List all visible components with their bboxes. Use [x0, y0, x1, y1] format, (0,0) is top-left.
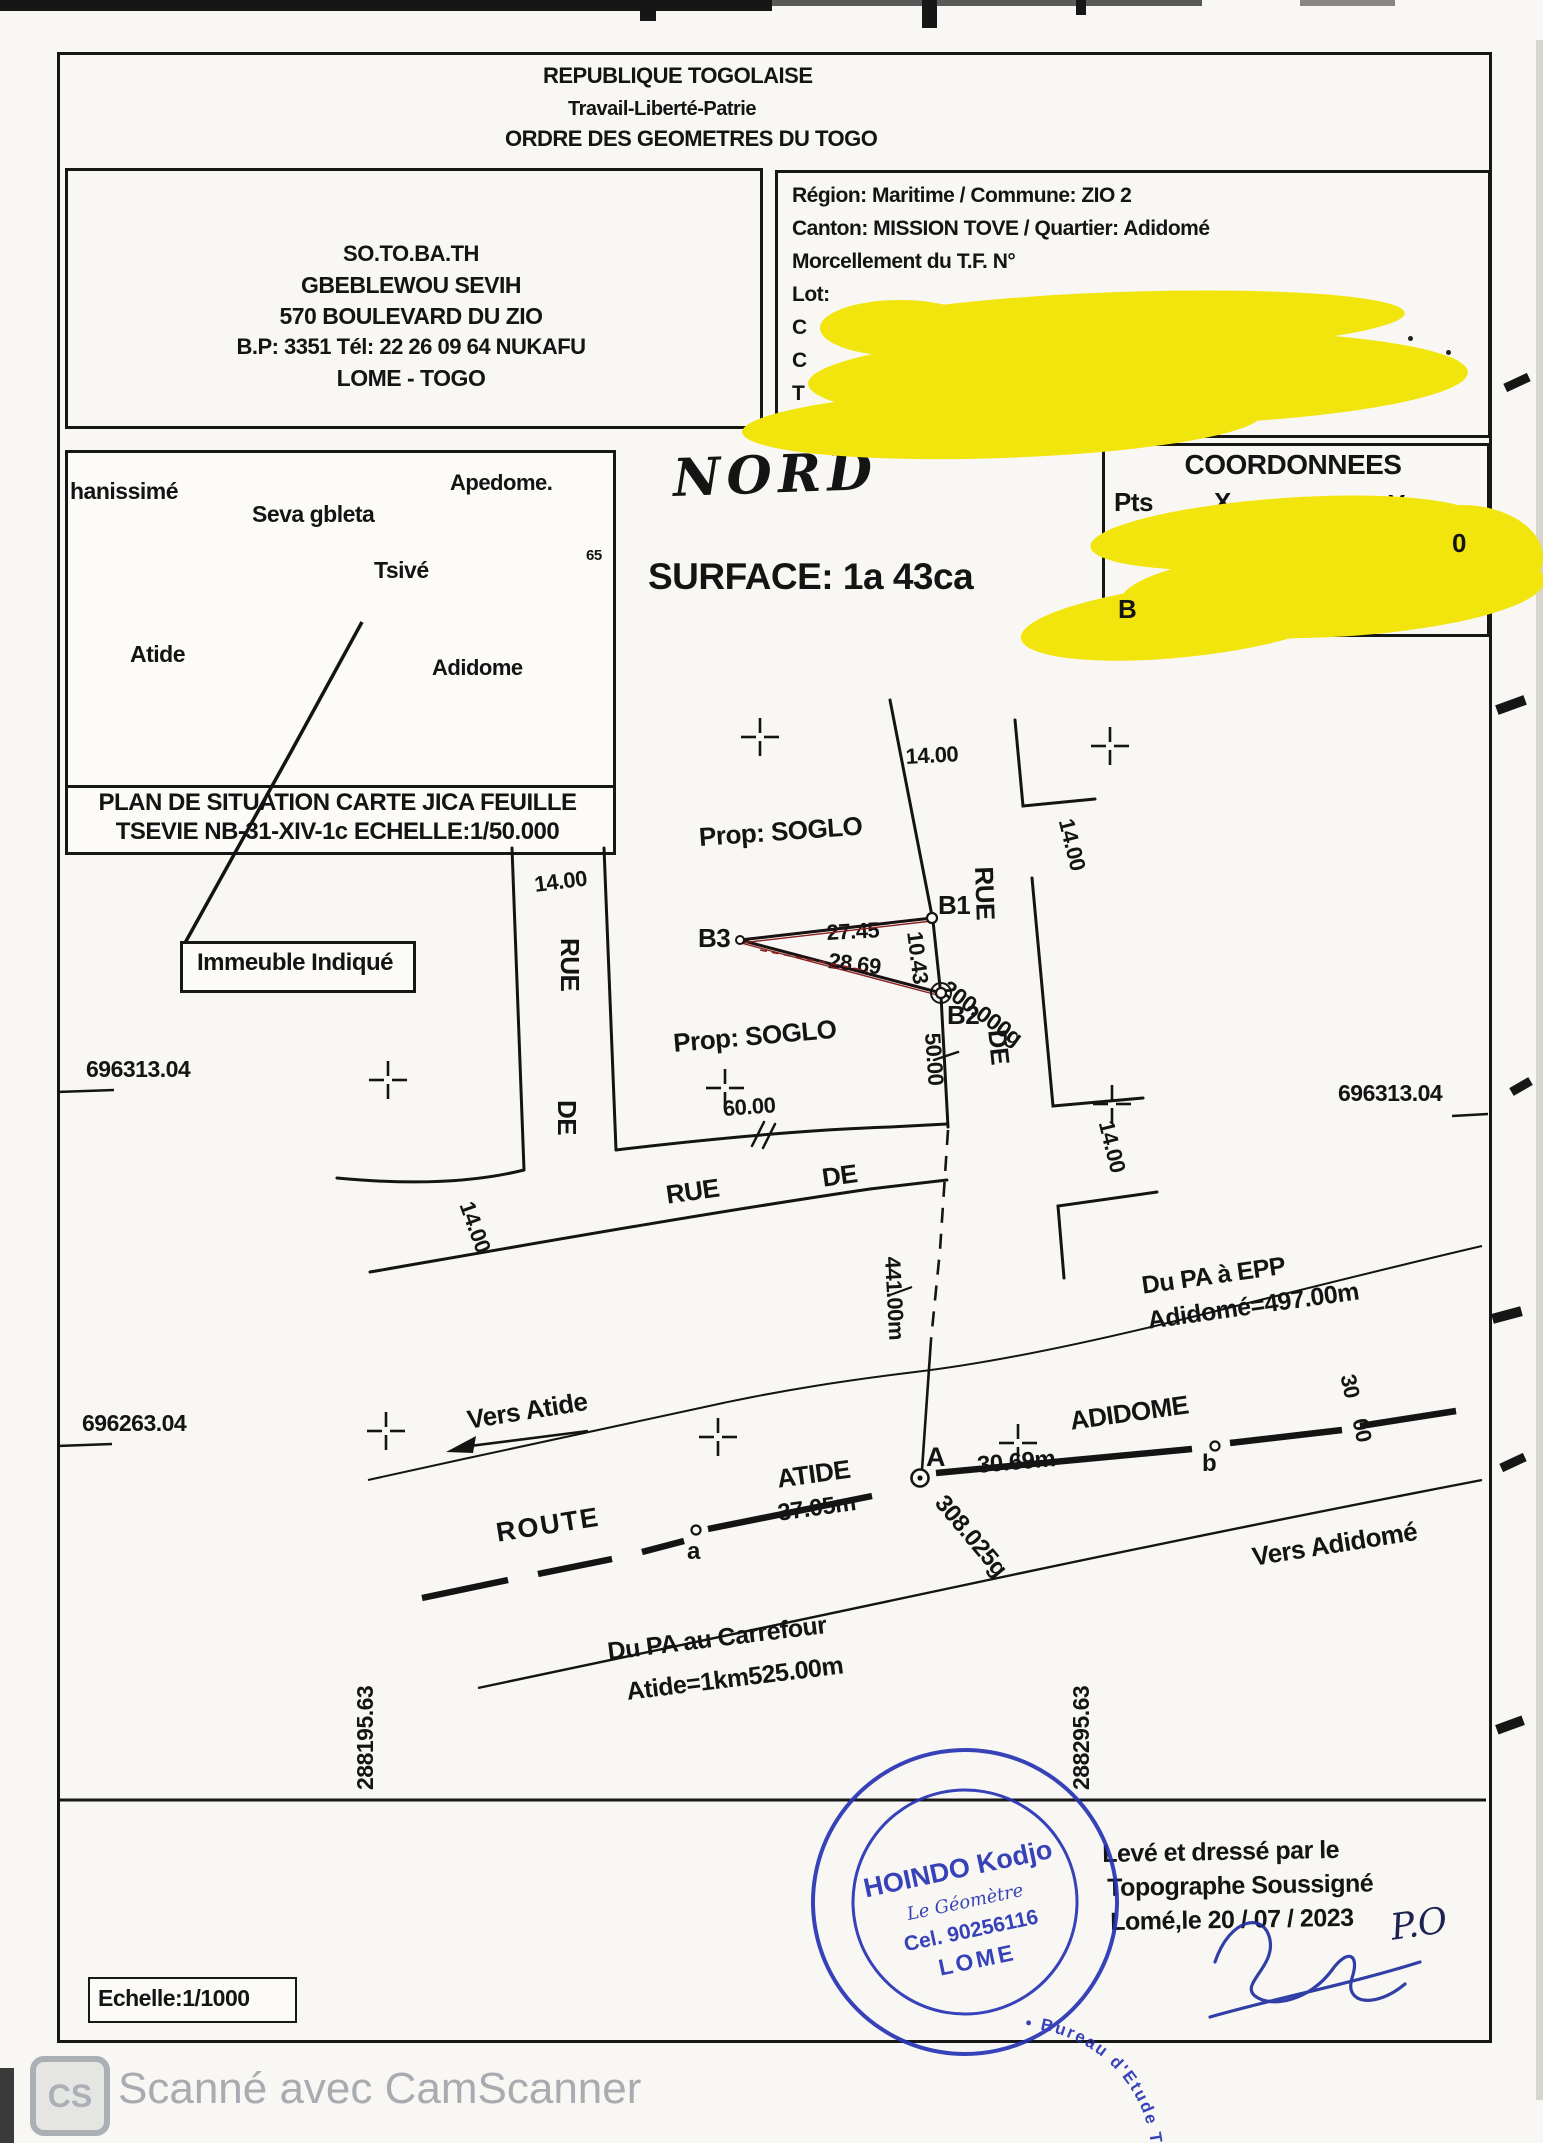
location-canton: Canton: MISSION TOVE / Quartier: Adidomé: [792, 217, 1210, 241]
street-label-de-left: DE: [551, 1100, 582, 1135]
scanned-survey-plan: REPUBLIQUE TOGOLAISE Travail-Liberté-Pat…: [0, 0, 1543, 2143]
location-redacted-line1: C: [792, 316, 807, 340]
camscanner-logo: CS: [30, 2056, 110, 2136]
map-label-atide: Atide: [130, 641, 185, 668]
header-country: REPUBLIQUE TOGOLAISE: [543, 63, 813, 89]
coordinate-696313-left: 696313.04: [86, 1056, 190, 1083]
scan-edge-artifact: [1076, 0, 1086, 15]
location-morcellement: Morcellement du T.F. N°: [792, 250, 1015, 274]
header-order: ORDRE DES GEOMETRES DU TOGO: [505, 126, 877, 152]
location-lot: Lot:: [792, 283, 830, 307]
surveyor-phone: B.P: 3351 Tél: 22 26 09 64 NUKAFU: [65, 334, 757, 360]
coordinate-288195-bottom: 288195.63: [352, 1686, 379, 1790]
map-label-65: 65: [586, 547, 602, 564]
coordinate-696263-left: 696263.04: [82, 1410, 186, 1437]
street-label-de-right: DE: [981, 1028, 1016, 1066]
street-label-rue-right: RUE: [968, 866, 1001, 920]
certification-date: Lomé,le 20 / 07 / 2023: [1110, 1904, 1354, 1937]
redaction-highlight: [820, 300, 980, 356]
map-caption-line2: TSEVIE NB-31-XIV-1c ECHELLE:1/50.000: [65, 818, 610, 846]
street-label-de-horizontal: DE: [820, 1158, 859, 1194]
point-label-A: A: [926, 1442, 945, 1473]
surveyor-city: LOME - TOGO: [65, 365, 757, 392]
coordinates-title: COORDONNEES: [1102, 449, 1484, 481]
scan-edge-artifact: [1300, 0, 1395, 6]
surface-label: SURFACE: 1a 43ca: [648, 556, 973, 598]
point-label-a: a: [687, 1538, 700, 1566]
scan-edge-artifact: [1509, 1077, 1533, 1096]
handwritten-po: P.O: [1388, 1900, 1450, 1948]
scan-edge-artifact: [772, 0, 1202, 6]
distance-441-00m: 441.00m: [879, 1256, 909, 1341]
scan-edge-artifact: [922, 0, 937, 28]
location-region: Région: Maritime / Commune: ZIO 2: [792, 184, 1131, 208]
scan-edge-artifact: [640, 0, 656, 21]
point-label-b1: B1: [938, 890, 970, 921]
coordinate-696313-right: 696313.04: [1338, 1080, 1442, 1107]
camscanner-watermark-text: Scanné avec CamScanner: [118, 2064, 641, 2114]
coordinates-peek-0: 0: [1452, 528, 1466, 559]
redaction-peek-dot: [1446, 350, 1451, 355]
coordinates-col-pts: Pts: [1114, 487, 1153, 518]
scan-edge-artifact: [1491, 1306, 1523, 1323]
scan-edge-artifact: [0, 2068, 14, 2143]
map-caption-line1: PLAN DE SITUATION CARTE JICA FEUILLE: [65, 789, 610, 817]
scale-label: Echelle:1/1000: [98, 1985, 250, 2012]
certification-line2: Topographe Soussigné: [1107, 1869, 1373, 1903]
map-label-tsive: Tsivé: [374, 557, 429, 584]
header-motto: Travail-Liberté-Patrie: [568, 98, 756, 121]
redaction-peek-dot: [1408, 336, 1413, 341]
map-label-sevagbleta: Seva gbleta: [252, 501, 374, 528]
point-label-b: b: [1202, 1450, 1216, 1478]
distance-27-45: 27.45: [826, 917, 880, 946]
surveyor-address: 570 BOULEVARD DU ZIO: [65, 303, 757, 330]
surveyor-line2: GBEBLEWOU SEVIH: [65, 272, 757, 299]
map-label-adidome: Adidome: [432, 655, 523, 681]
distance-60-00: 60.00: [722, 1092, 776, 1122]
scan-edge-artifact: [0, 0, 772, 11]
scan-edge-artifact: [1495, 695, 1527, 715]
street-label-rue-left: RUE: [554, 938, 585, 991]
indicator-label: Immeuble Indiqué: [180, 949, 410, 977]
coordinate-288295-bottom: 288295.63: [1068, 1686, 1095, 1790]
distance-14-00-top: 14.00: [905, 741, 959, 770]
map-label-apedome: Apedome.: [450, 470, 552, 496]
scan-edge-shadow: [1536, 40, 1543, 2100]
location-redacted-line2: C: [792, 349, 807, 373]
distance-50-00: 50.00: [919, 1032, 949, 1086]
surveyor-name: SO.TO.BA.TH: [65, 241, 757, 267]
certification-line1: Levé et dressé par le: [1102, 1836, 1339, 1869]
coordinates-peek-B: B: [1118, 594, 1136, 625]
location-redacted-line3: T: [792, 382, 804, 406]
scan-edge-artifact: [1503, 373, 1530, 392]
scan-edge-artifact: [1495, 1716, 1525, 1735]
point-label-b3: B3: [698, 923, 730, 954]
map-label-hanissime: hanissimé: [70, 478, 178, 505]
scan-edge-artifact: [1499, 1453, 1526, 1472]
